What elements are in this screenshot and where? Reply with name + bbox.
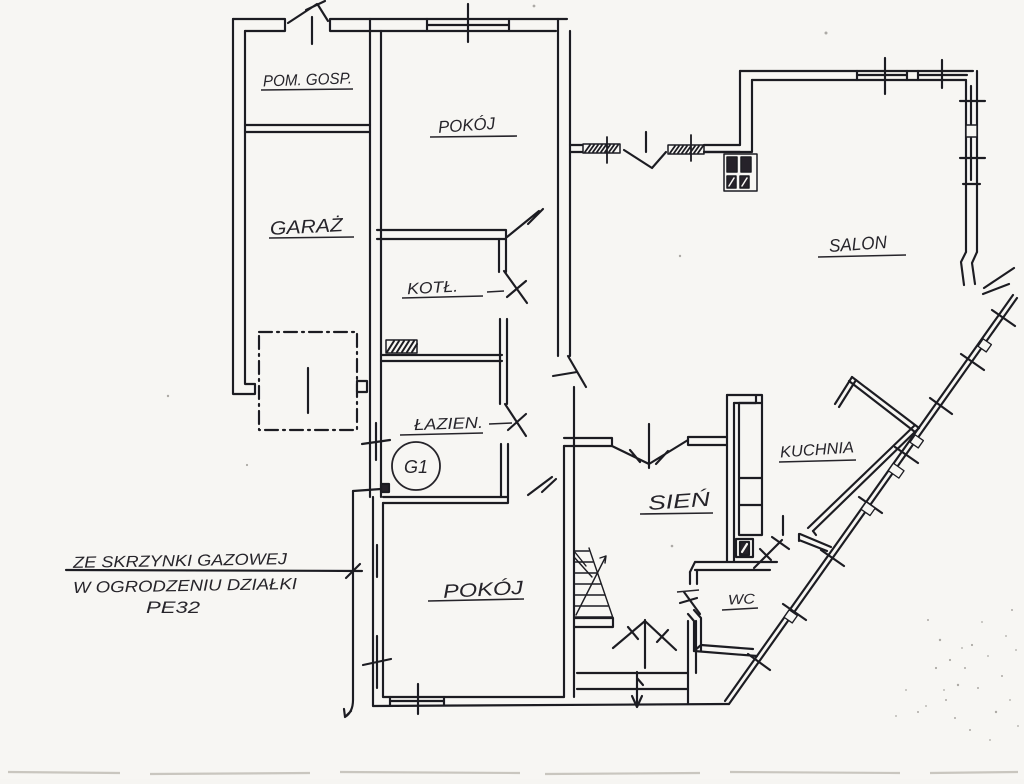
svg-text:ŁAZIEN.: ŁAZIEN. bbox=[414, 415, 484, 434]
svg-text:KOTŁ.: KOTŁ. bbox=[407, 279, 459, 299]
svg-text:SIEŃ: SIEŃ bbox=[647, 488, 711, 515]
svg-text:WC: WC bbox=[728, 590, 757, 607]
svg-text:G1: G1 bbox=[404, 457, 428, 477]
svg-text:PE32: PE32 bbox=[146, 598, 201, 617]
svg-text:GARAŻ: GARAŻ bbox=[269, 215, 345, 240]
svg-text:POM. GOSP.: POM. GOSP. bbox=[263, 70, 353, 90]
svg-text:SALON: SALON bbox=[828, 232, 888, 256]
svg-text:POKÓJ: POKÓJ bbox=[437, 114, 496, 137]
